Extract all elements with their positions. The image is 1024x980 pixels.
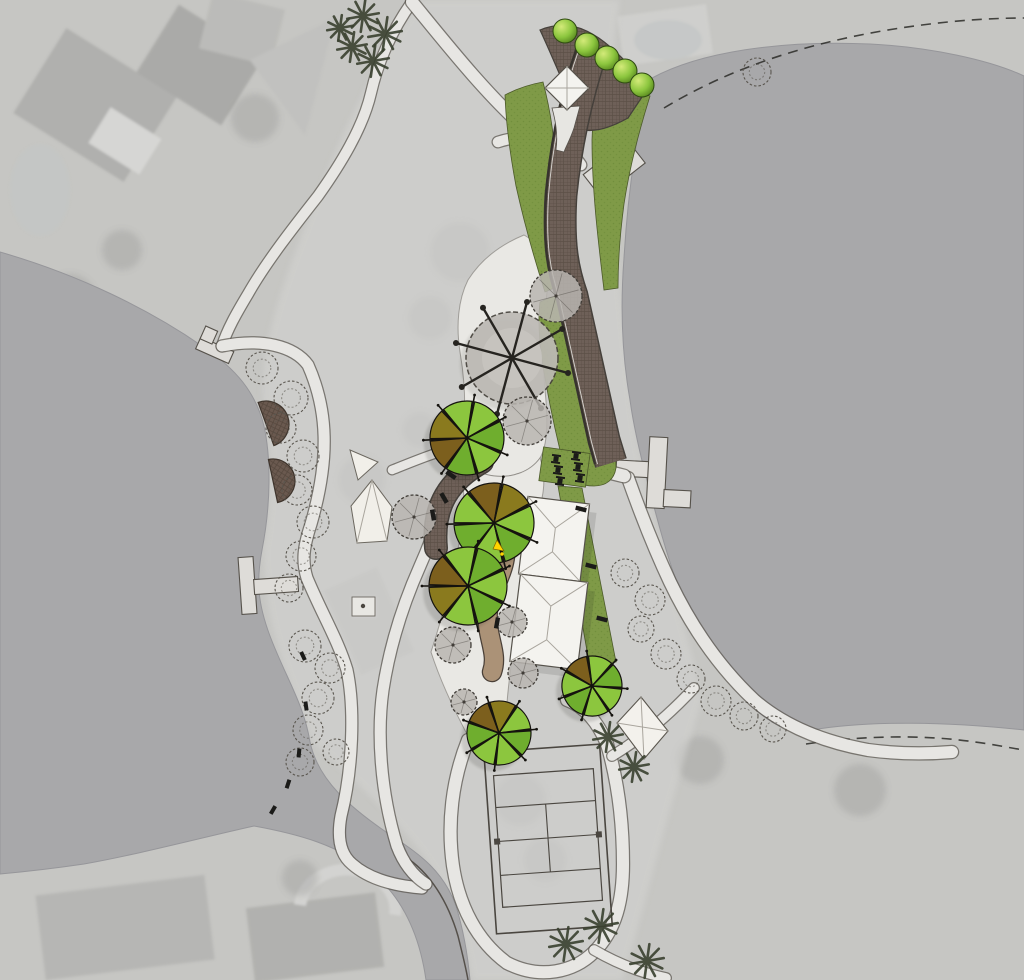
site-plan-canvas [0,0,1024,980]
existing-tree [435,627,471,663]
existing-tree [392,495,436,539]
existing-tree [503,397,551,445]
shore-marker [297,748,302,757]
game-table-pad [352,597,375,616]
existing-tree [497,607,527,637]
existing-tree [508,658,538,688]
existing-tree [530,270,582,322]
park-master-plan [0,0,1024,980]
hedge-tree [630,73,654,97]
hedge-tree [553,19,577,43]
existing-tree [451,689,477,715]
